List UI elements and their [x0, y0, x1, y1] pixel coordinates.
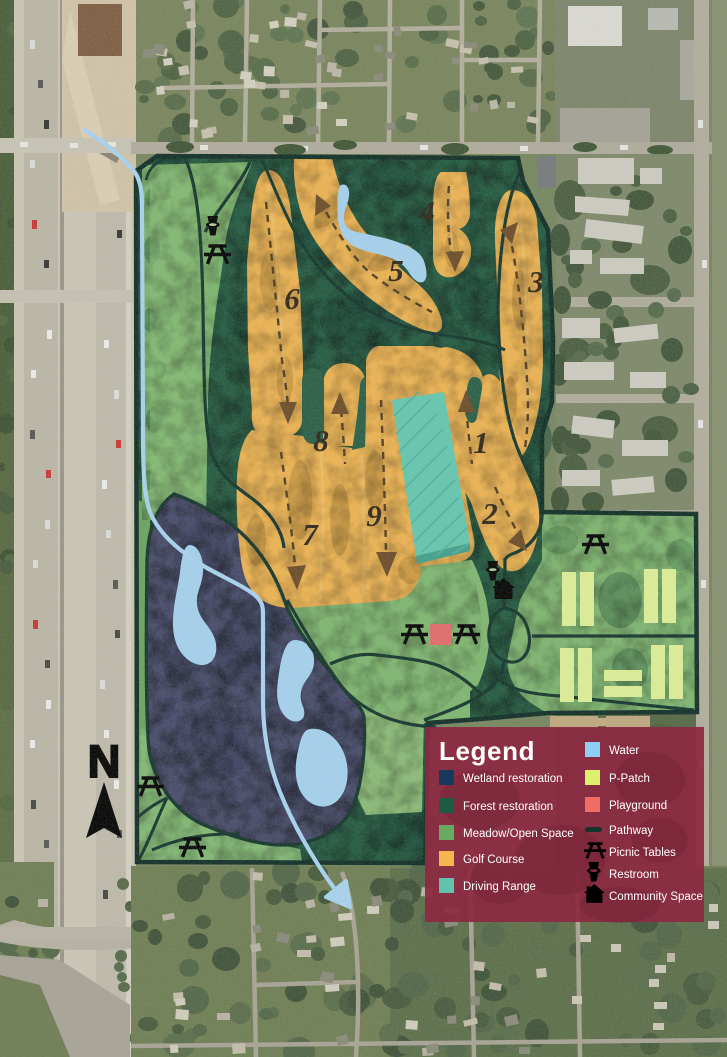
svg-text:Picnic Tables: Picnic Tables — [609, 847, 676, 859]
svg-text:Restroom: Restroom — [609, 869, 659, 881]
svg-text:Community Space: Community Space — [609, 891, 703, 903]
svg-text:Driving Range: Driving Range — [463, 881, 536, 893]
svg-text:Meadow/Open Space: Meadow/Open Space — [463, 828, 574, 840]
svg-text:P-Patch: P-Patch — [609, 773, 650, 785]
svg-text:Legend: Legend — [439, 736, 535, 766]
svg-text:Forest restoration: Forest restoration — [463, 801, 553, 813]
svg-text:Playground: Playground — [609, 800, 667, 812]
svg-text:Golf Course: Golf Course — [463, 854, 524, 866]
svg-text:Pathway: Pathway — [609, 825, 653, 837]
svg-text:Wetland restoration: Wetland restoration — [463, 773, 563, 785]
svg-text:Water: Water — [609, 745, 639, 757]
